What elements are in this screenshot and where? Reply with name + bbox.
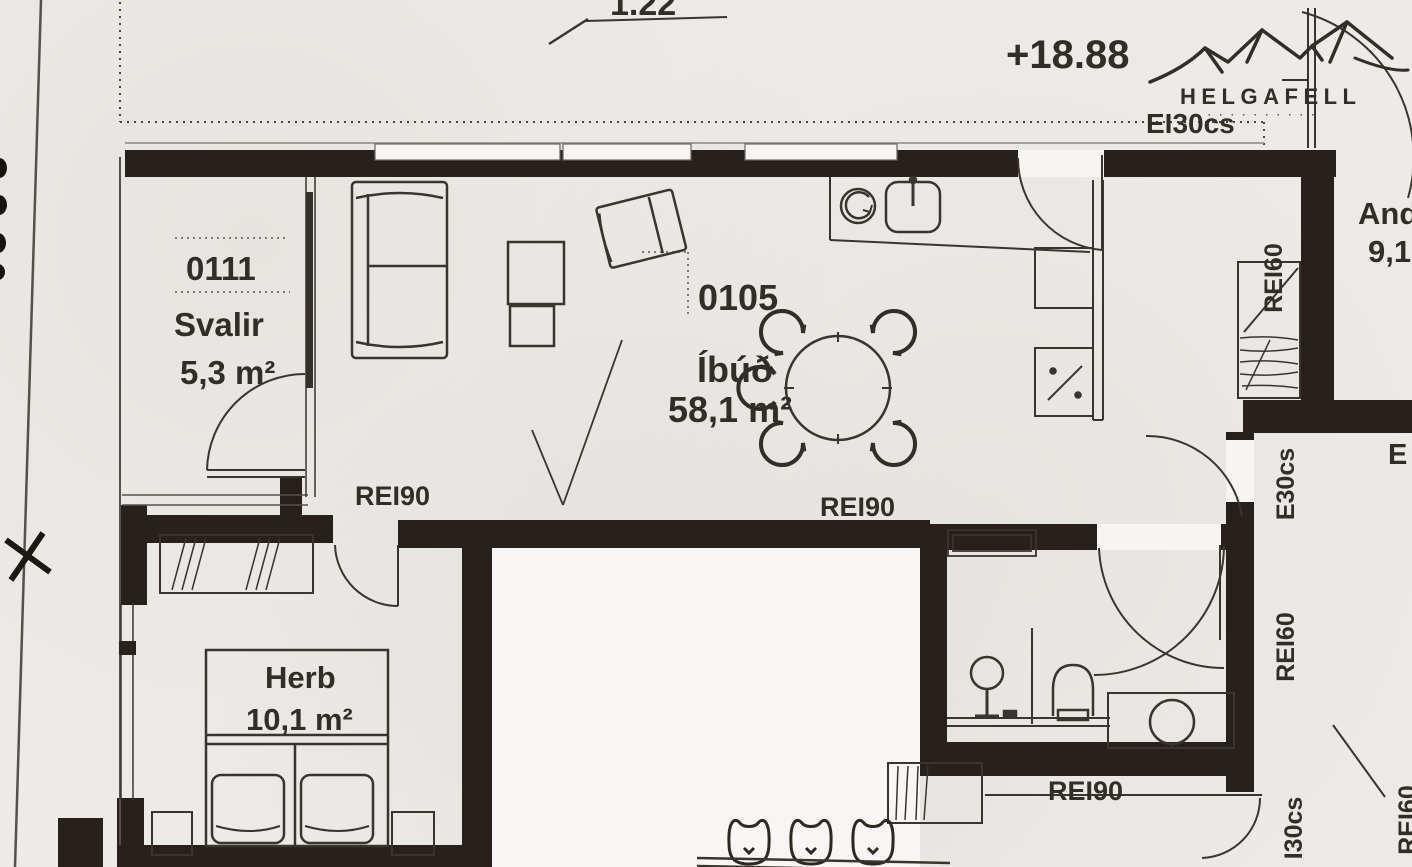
windows	[375, 144, 1254, 550]
scan-void	[492, 548, 920, 867]
label-rei60-closet: REI60	[1260, 243, 1288, 312]
wall-mid-left	[120, 515, 333, 543]
label-e30cs-right: E30cs	[1272, 448, 1300, 520]
wall-bedroom-right	[462, 540, 492, 867]
entry-door-gap	[1018, 150, 1104, 177]
label-apartment-area: 58,1 m²	[668, 389, 792, 430]
shower	[1108, 693, 1234, 748]
label-balcony-name: Svalir	[174, 306, 264, 343]
mountain-logo-icon	[1150, 22, 1408, 82]
wall-bedroom-left-top	[120, 505, 147, 605]
label-bedroom-area: 10,1 m²	[246, 702, 353, 737]
sofa	[352, 182, 447, 358]
pillows	[212, 775, 373, 843]
label-bedroom-name: Herb	[265, 660, 336, 695]
dining-table	[784, 332, 892, 444]
window-kitchen	[745, 144, 897, 160]
leader-lines	[532, 340, 622, 505]
label-e-partial: E	[1388, 439, 1407, 471]
sliding-door-leaf	[306, 192, 313, 388]
wall-bath-left	[920, 524, 947, 776]
bathroom-doors	[1094, 545, 1224, 675]
label-i30cs-bottom: I30cs	[1280, 797, 1308, 860]
label-dimension-top: 1.22	[610, 0, 676, 23]
label-rei90-center: REI90	[820, 492, 895, 522]
label-rei60-corner: REI60	[1394, 785, 1412, 854]
door-leaf-diagonal	[1333, 725, 1385, 797]
label-apartment-number: 0105	[698, 277, 778, 318]
logo-text: HELGAFELL	[1180, 84, 1362, 109]
bath-door-gap	[1097, 524, 1221, 550]
sink	[886, 176, 940, 232]
label-hall-name: And	[1358, 196, 1412, 231]
toilet	[1053, 665, 1093, 720]
wall-right-upper	[1301, 150, 1334, 403]
label-elevation: +18.88	[1006, 33, 1129, 77]
bedroom-door	[335, 545, 398, 606]
wall-stub-balcony	[280, 478, 302, 518]
window-living-2	[563, 144, 691, 160]
stove-icon	[841, 189, 875, 223]
label-ei30cs-top: EI30cs	[1146, 108, 1235, 139]
wash-basin	[947, 628, 1110, 726]
armchair	[596, 189, 687, 268]
floorplan-scan: 1.22 +18.88 HELGAFELL · · · · · · · · · …	[0, 0, 1412, 867]
label-rei90-bottom: REI90	[1048, 776, 1123, 806]
window-living-1	[375, 144, 560, 160]
wardrobe	[160, 535, 313, 593]
label-apartment-name: Íbúð	[697, 349, 773, 390]
edge-blobs-clipped-text	[0, 158, 7, 280]
wall-top	[125, 150, 1336, 177]
coffee-tables	[508, 242, 564, 346]
label-rei60-right: REI60	[1272, 612, 1300, 681]
label-balcony-number: 0111	[186, 250, 256, 287]
appliances	[1035, 248, 1093, 416]
floorplan-drawing: 1.22 +18.88 HELGAFELL · · · · · · · · · …	[0, 0, 1412, 867]
bedroom-window	[119, 603, 136, 800]
label-hall-area: 9,1	[1368, 234, 1411, 269]
wall-corner-outside	[58, 818, 103, 867]
survey-cross-icon	[6, 533, 50, 580]
wall-right-mid	[1243, 400, 1412, 433]
property-line	[15, 0, 41, 867]
label-balcony-area: 5,3 m²	[180, 354, 275, 391]
kitchen-counter	[830, 177, 1103, 420]
e30cs-door-gap	[1226, 440, 1254, 502]
label-rei90-left: REI90	[355, 481, 430, 511]
